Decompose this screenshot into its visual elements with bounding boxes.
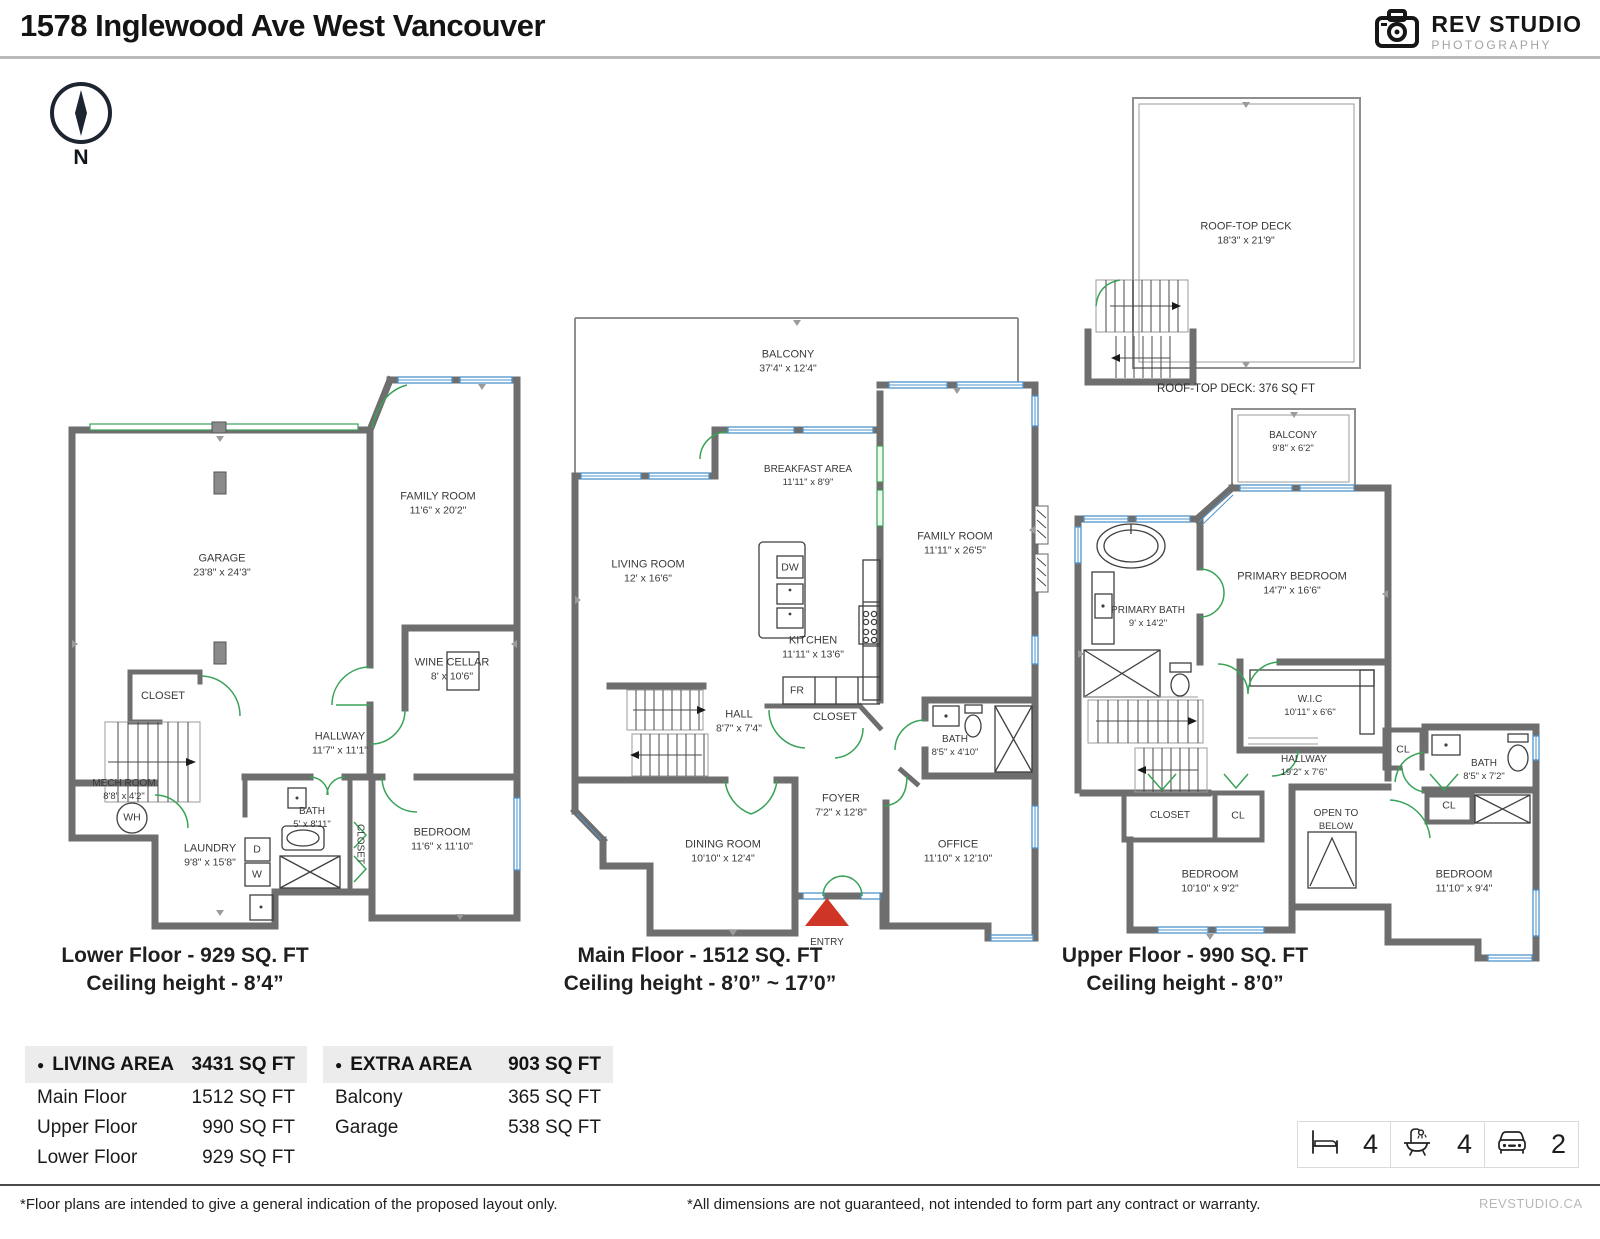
caption-lower-ceiling: Ceiling height - 8’4”	[15, 972, 355, 996]
car-icon	[1495, 1127, 1529, 1162]
room-label: MECH ROOM8'8" x 4'2"	[92, 778, 155, 802]
room-label: LAUNDRY9'8" x 15'8"	[184, 843, 236, 870]
living-area-header: ●LIVING AREA 3431 SQ FT	[25, 1046, 307, 1083]
caption-main: Main Floor - 1512 SQ. FT Ceiling height …	[530, 944, 870, 996]
bathroom-count: 4	[1457, 1129, 1472, 1160]
room-label: W.I.C10'11" x 6'6"	[1284, 694, 1335, 718]
room-label: BEDROOM11'10" x 9'4"	[1436, 869, 1493, 896]
stairs-main	[627, 690, 708, 776]
floor-plan-sheet: { "header": { "title": "1578 Inglewood A…	[0, 0, 1600, 1239]
room-label: ROOF-TOP DECK18'3" x 21'9"	[1200, 221, 1291, 248]
room-label: FAMILY ROOM11'11" x 26'5"	[917, 531, 992, 558]
room-label: WH	[123, 811, 141, 824]
room-label: CL	[1396, 743, 1409, 756]
extra-area-header: ●EXTRA AREA 903 SQ FT	[323, 1046, 613, 1083]
room-label: PRIMARY BATH9' x 14'2"	[1111, 605, 1185, 629]
room-label: FAMILY ROOM11'6" x 20'2"	[400, 491, 475, 518]
caption-lower-area: Lower Floor - 929 SQ. FT	[15, 944, 355, 968]
table-row: Lower Floor929 SQ FT	[25, 1143, 307, 1173]
room-label: DW	[781, 561, 799, 574]
room-label: BREAKFAST AREA11'11" x 8'9"	[764, 464, 852, 488]
bullet-icon: ●	[335, 1058, 342, 1072]
room-label: HALL8'7" x 7'4"	[716, 709, 762, 736]
room-label: FOYER7'2" x 12'8"	[815, 793, 867, 820]
table-row: Garage538 SQ FT	[323, 1113, 613, 1143]
roof-deck-stairs	[1088, 280, 1193, 382]
table-row: Upper Floor990 SQ FT	[25, 1113, 307, 1143]
bed-icon	[1308, 1127, 1340, 1162]
living-area-title: LIVING AREA	[52, 1054, 174, 1076]
room-label: FR	[790, 684, 804, 697]
room-label: KITCHEN11'11" x 13'6"	[782, 635, 844, 662]
footer-divider	[0, 1184, 1600, 1186]
floor-plan-upper: ROOF-TOP DECK: 376 SQ FT ROOF-TOP DECK18…	[1058, 90, 1548, 970]
compass-ring	[50, 82, 112, 144]
caption-lower: Lower Floor - 929 SQ. FT Ceiling height …	[15, 944, 355, 996]
room-label: BEDROOM11'6" x 11'10"	[411, 827, 473, 854]
room-label: HALLWAY19'2" x 7'6"	[1281, 754, 1328, 778]
room-label: OFFICE11'10" x 12'10"	[924, 839, 993, 866]
living-area-table: ●LIVING AREA 3431 SQ FT Main Floor1512 S…	[25, 1046, 307, 1173]
room-label: WINE CELLAR8' x 10'6"	[415, 657, 490, 684]
stat-bedrooms: 4	[1297, 1121, 1391, 1168]
stairs-upper	[1088, 700, 1207, 792]
compass: N	[46, 82, 116, 170]
room-label: DINING ROOM10'10" x 12'4"	[685, 839, 761, 866]
open-below-symbol	[1308, 832, 1356, 888]
room-label: CLOSET	[141, 690, 185, 704]
stat-garage: 2	[1485, 1121, 1579, 1168]
caption-main-ceiling: Ceiling height - 8’0” ~ 17’0”	[530, 972, 870, 996]
camera-icon	[1371, 8, 1423, 55]
room-label: BATH8'5" x 4'10"	[932, 734, 979, 758]
bath-icon	[1401, 1126, 1433, 1163]
caption-upper-ceiling: Ceiling height - 8’0”	[1015, 972, 1355, 996]
floor-plan-main: BALCONY37'4" x 12'4"BREAKFAST AREA11'11"…	[563, 306, 1053, 956]
room-label: OPEN TOBELOW	[1314, 808, 1359, 832]
kitchen-fixtures	[759, 542, 880, 704]
living-area-total: 3431 SQ FT	[192, 1054, 296, 1076]
brand-subtitle: PHOTOGRAPHY	[1431, 39, 1582, 51]
caption-upper-area: Upper Floor - 990 SQ. FT	[1015, 944, 1355, 968]
room-label: BEDROOM10'10" x 9'2"	[1181, 869, 1239, 896]
room-label: LIVING ROOM12' x 16'6"	[611, 559, 684, 586]
bullet-icon: ●	[37, 1058, 44, 1072]
room-label: CL	[1231, 809, 1244, 822]
balcony-rail	[575, 318, 1018, 476]
extra-area-total: 903 SQ FT	[508, 1054, 601, 1076]
page-title: 1578 Inglewood Ave West Vancouver	[20, 8, 545, 44]
room-label: CLOSET	[1150, 810, 1190, 823]
room-label: CL	[1442, 799, 1455, 812]
garage-count: 2	[1551, 1129, 1566, 1160]
windows-layer	[398, 377, 520, 870]
room-label: BALCONY9'8" x 6'2"	[1269, 430, 1317, 454]
brand-logo: REV STUDIO PHOTOGRAPHY	[1371, 8, 1582, 55]
room-label: CLOSET	[353, 824, 366, 864]
room-label: BALCONY37'4" x 12'4"	[759, 349, 817, 376]
entry-marker	[805, 898, 849, 926]
rooftop-deck-area-note: ROOF-TOP DECK: 376 SQ FT	[1157, 383, 1315, 395]
doors-layer	[155, 385, 417, 882]
room-label: HALLWAY11'7" x 11'1"	[312, 731, 368, 758]
room-label: D	[253, 843, 261, 856]
stat-bathrooms: 4	[1391, 1121, 1485, 1168]
room-label: PRIMARY BEDROOM14'7" x 16'6"	[1237, 571, 1347, 598]
room-label: CLOSET	[813, 711, 857, 725]
property-stats: 4 4 2	[1297, 1121, 1579, 1168]
doors-layer	[700, 432, 925, 896]
room-label: BATH8'5" x 7'2"	[1463, 758, 1505, 782]
room-label: GARAGE23'8" x 24'3"	[193, 553, 251, 580]
bedroom-count: 4	[1363, 1129, 1378, 1160]
extra-area-table: ●EXTRA AREA 903 SQ FT Balcony365 SQ FTGa…	[323, 1046, 613, 1143]
table-row: Main Floor1512 SQ FT	[25, 1083, 307, 1113]
footer-site-url: REVSTUDIO.CA	[1479, 1196, 1583, 1211]
brand-name: REV STUDIO	[1431, 13, 1582, 36]
caption-main-area: Main Floor - 1512 SQ. FT	[530, 944, 870, 968]
extra-area-title: EXTRA AREA	[350, 1054, 472, 1076]
room-label: BATH5' x 8'11"	[293, 806, 330, 830]
room-label: W	[252, 868, 262, 881]
table-row: Balcony365 SQ FT	[323, 1083, 613, 1113]
footer-disclaimer-center: *All dimensions are not guaranteed, not …	[687, 1196, 1260, 1213]
floor-plan-lower: GARAGE23'8" x 24'3"FAMILY ROOM11'6" x 20…	[60, 370, 525, 936]
compass-north-label: N	[46, 146, 116, 170]
caption-upper: Upper Floor - 990 SQ. FT Ceiling height …	[1015, 944, 1355, 996]
footer-disclaimer-left: *Floor plans are intended to give a gene…	[20, 1196, 558, 1213]
header-divider	[0, 56, 1600, 59]
